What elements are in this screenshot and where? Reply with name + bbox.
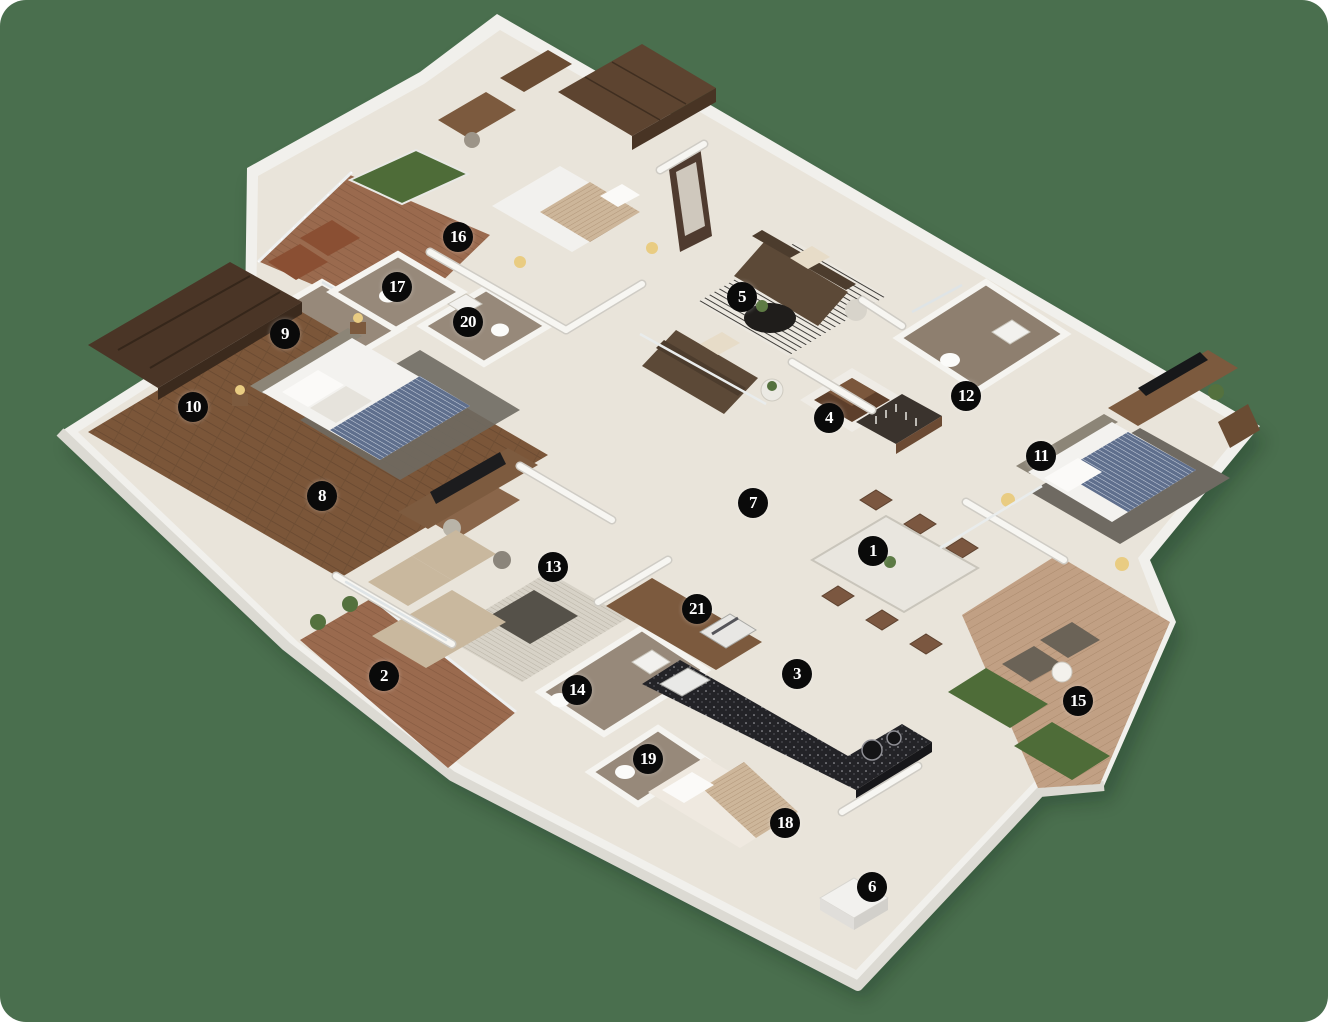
table-lamp: [646, 242, 658, 254]
table-lamp: [235, 385, 245, 395]
cooktop: [862, 740, 882, 760]
desk-chair: [464, 132, 480, 148]
toilet: [491, 324, 509, 337]
table-lamp: [353, 313, 363, 323]
toilet: [940, 353, 960, 367]
toilet: [615, 765, 635, 779]
centerpiece-plant: [884, 556, 896, 568]
nightstand: [232, 394, 248, 406]
toilet: [379, 290, 397, 303]
floor-plan-image: 123456789101112131415161718192021: [0, 0, 1328, 1022]
patio-table: [1052, 662, 1072, 682]
plant: [756, 300, 768, 312]
toilet: [550, 693, 570, 707]
cooktop: [887, 731, 901, 745]
nightstand: [350, 322, 366, 334]
side-table: [493, 551, 511, 569]
table-lamp: [1115, 557, 1129, 571]
plant: [342, 596, 358, 612]
plant: [767, 381, 777, 391]
coffee-table: [744, 303, 796, 333]
floor-plan-rendering: [0, 0, 1328, 1022]
table-lamp: [514, 256, 526, 268]
plant: [1208, 384, 1224, 400]
